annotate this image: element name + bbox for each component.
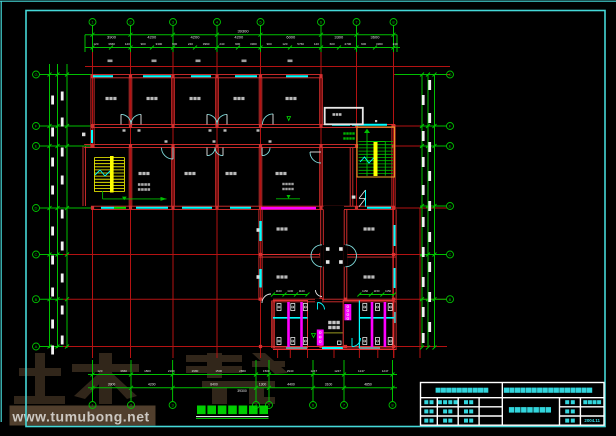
svg-text:2980: 2980 <box>192 369 199 373</box>
svg-text:240: 240 <box>219 42 224 46</box>
svg-text:1500: 1500 <box>263 369 270 373</box>
svg-text:www.tumubong.net: www.tumubong.net <box>11 408 149 424</box>
svg-text:4200: 4200 <box>234 35 244 40</box>
svg-text:3600: 3600 <box>371 35 381 40</box>
svg-text:5760: 5760 <box>297 42 304 46</box>
svg-text:C: C <box>449 252 452 257</box>
svg-text:1100: 1100 <box>299 289 305 293</box>
svg-text:E: E <box>35 144 38 149</box>
svg-text:4200: 4200 <box>148 383 156 387</box>
svg-text:3660: 3660 <box>120 369 127 373</box>
svg-text:1800: 1800 <box>144 369 151 373</box>
svg-text:120: 120 <box>125 42 130 46</box>
svg-text:900: 900 <box>172 42 177 46</box>
svg-text:600: 600 <box>330 42 335 46</box>
svg-text:A: A <box>35 344 38 349</box>
svg-text:2940: 2940 <box>287 369 294 373</box>
svg-text:D: D <box>449 204 452 209</box>
svg-text:3900: 3900 <box>107 35 117 40</box>
svg-text:4200: 4200 <box>147 35 157 40</box>
svg-text:2100: 2100 <box>168 369 175 373</box>
svg-text:900: 900 <box>235 42 240 46</box>
svg-text:120: 120 <box>97 369 102 373</box>
svg-text:120: 120 <box>282 42 287 46</box>
svg-text:900: 900 <box>141 42 146 46</box>
svg-text:600: 600 <box>361 42 366 46</box>
svg-text:3960: 3960 <box>203 42 210 46</box>
svg-text:3300: 3300 <box>156 42 163 46</box>
svg-text:240: 240 <box>393 42 398 46</box>
svg-text:3660: 3660 <box>108 42 115 46</box>
svg-text:G: G <box>448 72 451 77</box>
svg-text:6000: 6000 <box>286 35 296 40</box>
svg-text:4200: 4200 <box>191 35 201 40</box>
svg-text:1150: 1150 <box>385 289 391 293</box>
svg-text:1247: 1247 <box>382 369 389 373</box>
svg-text:1150: 1150 <box>362 289 368 293</box>
svg-text:C: C <box>35 252 38 257</box>
svg-text:3100: 3100 <box>325 383 333 387</box>
svg-text:3900: 3900 <box>108 383 116 387</box>
svg-text:900: 900 <box>267 42 272 46</box>
svg-text:G: G <box>34 72 37 77</box>
svg-text:8400: 8400 <box>210 383 218 387</box>
svg-text:2700: 2700 <box>345 42 352 46</box>
svg-text:B: B <box>35 297 38 302</box>
svg-text:120: 120 <box>314 42 319 46</box>
svg-text:1100: 1100 <box>287 289 293 293</box>
svg-text:120: 120 <box>93 42 98 46</box>
svg-text:E: E <box>449 144 452 149</box>
svg-text:3300: 3300 <box>334 35 344 40</box>
svg-text:1300: 1300 <box>259 383 267 387</box>
svg-text:3360: 3360 <box>376 42 383 46</box>
svg-text:4400: 4400 <box>287 383 295 387</box>
svg-text:1150: 1150 <box>374 289 380 293</box>
svg-text:1247: 1247 <box>358 369 365 373</box>
svg-text:39300: 39300 <box>237 389 247 393</box>
svg-text:B: B <box>449 297 452 302</box>
svg-text:1500: 1500 <box>215 369 222 373</box>
svg-text:3300: 3300 <box>250 42 257 46</box>
svg-text:4850: 4850 <box>364 383 372 387</box>
svg-text:240: 240 <box>188 42 193 46</box>
svg-text:2860: 2860 <box>239 369 246 373</box>
svg-text:1100: 1100 <box>276 289 282 293</box>
svg-text:1247: 1247 <box>334 369 341 373</box>
svg-text:D: D <box>35 206 38 211</box>
svg-text:2004.11: 2004.11 <box>584 418 600 423</box>
svg-text:1247: 1247 <box>310 369 317 373</box>
svg-text:39300: 39300 <box>237 28 249 33</box>
